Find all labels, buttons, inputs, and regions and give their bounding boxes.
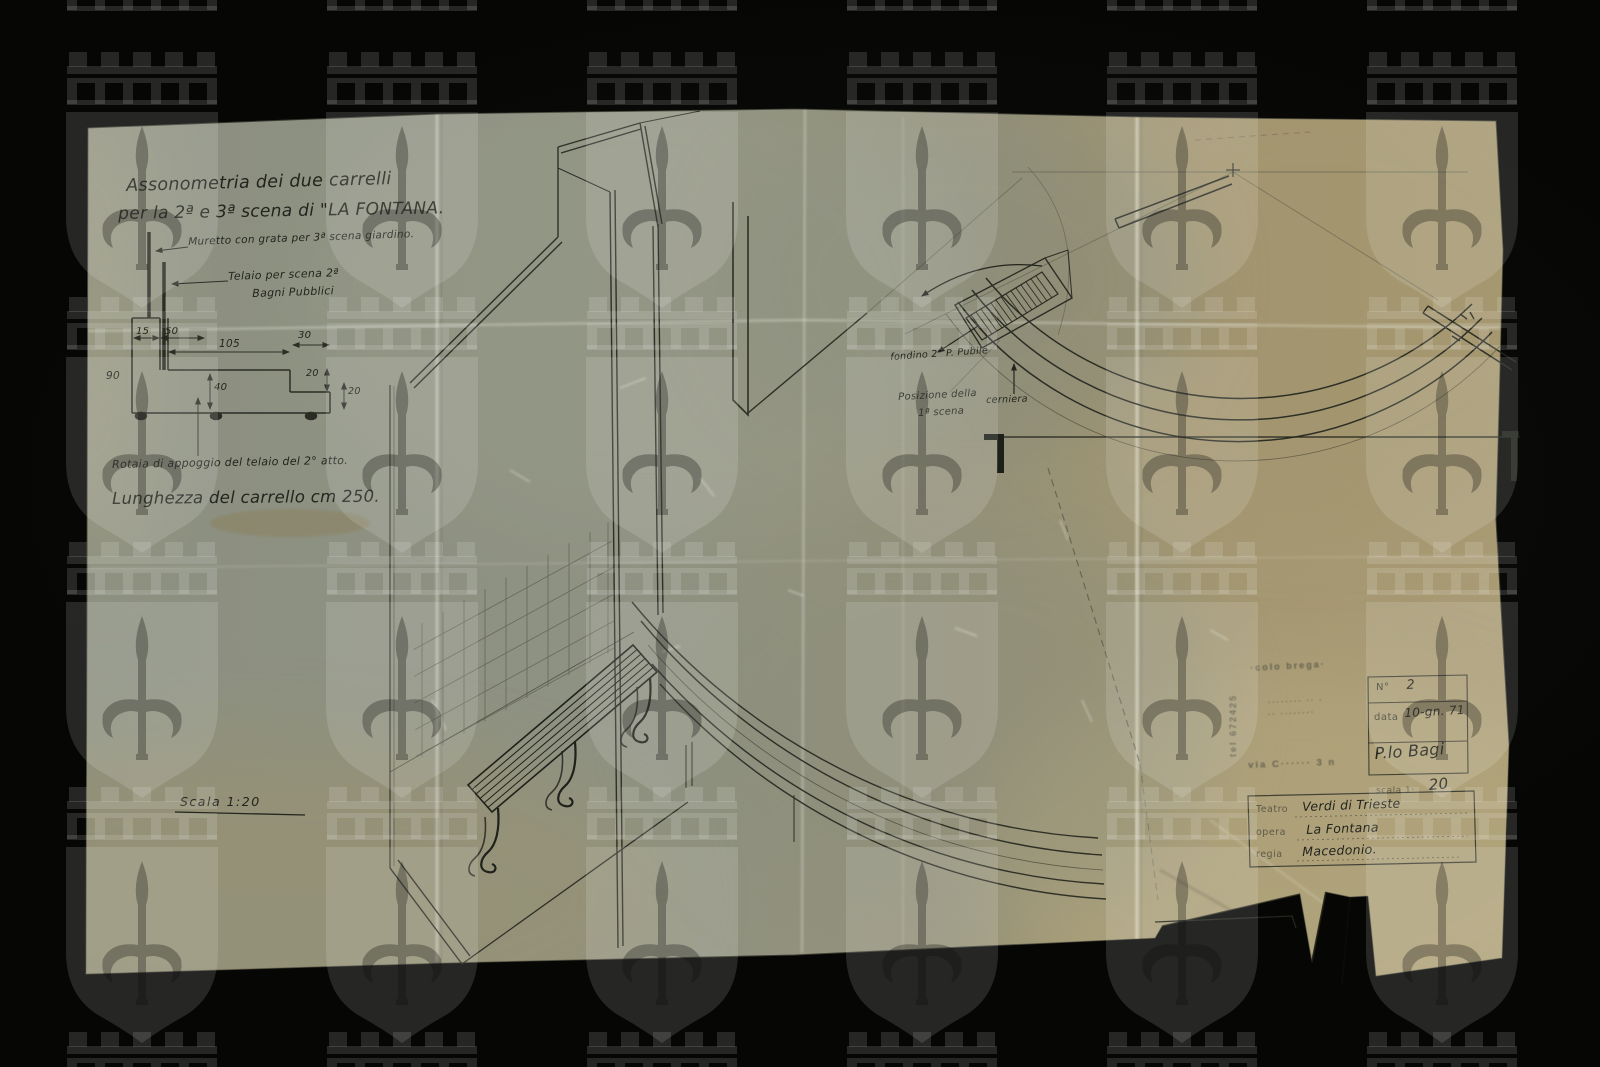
titleblock-number-label: N° [1376,682,1389,693]
titleblock-row-regia-label: regia [1256,849,1283,860]
titleblock-row-regia-value: Macedonio. [1302,841,1377,859]
scanned-drawing-photo: Assonometria dei due carrelli per la 2ª … [0,0,1600,1067]
technical-drawing-canvas [0,0,1600,1067]
titleblock-row-teatro-label: Teatro [1256,804,1288,815]
label-scala: Scala 1:20 [180,794,261,809]
rubber-stamp-side: tel 672425 [1228,694,1238,757]
dim-20-step: 20 [306,368,319,379]
dim-15: 15 [136,326,149,337]
dim-30: 30 [298,330,311,341]
dim-50: 50 [165,326,178,337]
titleblock-scale-value: 20 [1428,774,1449,794]
titleblock-row-opera-value: La Fontana [1306,819,1379,837]
dim-40: 40 [214,382,227,393]
titleblock-row-opera-label: opera [1256,827,1286,838]
titleblock-number-value: 2 [1406,678,1415,693]
dim-20-end: 20 [348,386,361,397]
dim-90: 90 [106,370,120,382]
titleblock-scale-label: scala 1: [1376,786,1415,796]
label-cerniera: cerniera [986,394,1028,406]
dim-105: 105 [219,338,240,350]
titleblock-date-label: data [1374,712,1399,723]
label-lunghezza: Lunghezza del carrello cm 250. [112,487,380,508]
